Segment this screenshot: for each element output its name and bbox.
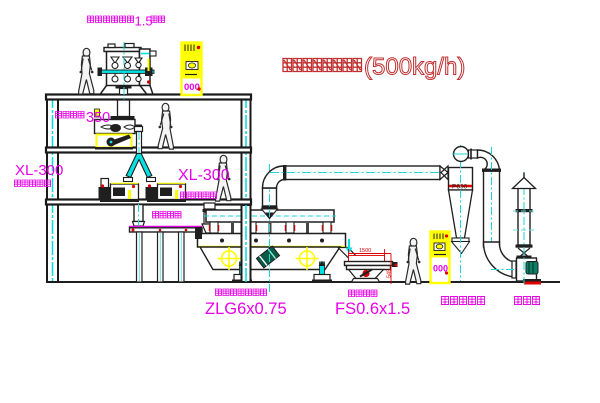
svg-text:000: 000 (184, 82, 200, 93)
svg-text:XL-300: XL-300 (178, 167, 230, 184)
svg-text:FS0.6x1.5: FS0.6x1.5 (335, 300, 410, 318)
svg-text:(500kg/h): (500kg/h) (364, 54, 465, 81)
svg-text:1.5: 1.5 (135, 14, 153, 29)
svg-text:ZLG6x0.75: ZLG6x0.75 (205, 300, 287, 318)
svg-text:XL-300: XL-300 (15, 162, 63, 179)
svg-text:545: 545 (387, 269, 393, 278)
svg-text:1500: 1500 (359, 248, 371, 254)
svg-text:350: 350 (86, 110, 110, 126)
